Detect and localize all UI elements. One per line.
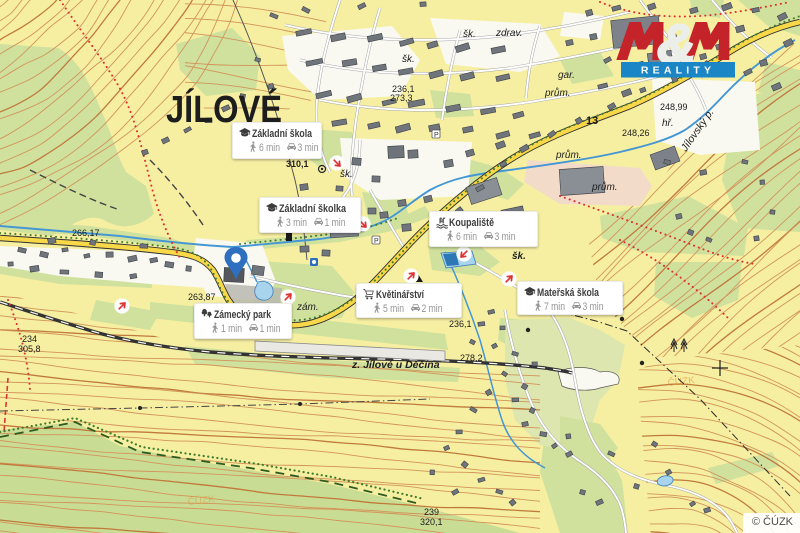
svg-text:320,1: 320,1 bbox=[420, 517, 443, 527]
svg-text:Květinářství: Květinářství bbox=[376, 289, 425, 301]
svg-text:305,8: 305,8 bbox=[18, 344, 41, 354]
svg-text:zdrav.: zdrav. bbox=[495, 28, 523, 39]
svg-text:263,87: 263,87 bbox=[188, 292, 216, 302]
svg-text:prům.: prům. bbox=[555, 149, 582, 161]
svg-text:3 min: 3 min bbox=[583, 301, 604, 313]
svg-text:šk.: šk. bbox=[512, 251, 526, 262]
svg-text:Základní školka: Základní školka bbox=[279, 203, 347, 215]
svg-text:3 min: 3 min bbox=[495, 231, 516, 243]
svg-text:šk.: šk. bbox=[463, 29, 476, 40]
svg-text:P: P bbox=[434, 132, 439, 139]
svg-text:prům.: prům. bbox=[544, 87, 571, 99]
svg-text:7 min: 7 min bbox=[544, 301, 565, 313]
svg-text:5 min: 5 min bbox=[383, 303, 404, 315]
svg-text:Koupaliště: Koupaliště bbox=[449, 217, 494, 229]
svg-text:239: 239 bbox=[424, 507, 439, 517]
svg-text:3 min: 3 min bbox=[298, 142, 319, 154]
svg-text:266,17: 266,17 bbox=[72, 228, 100, 238]
svg-text:1 min: 1 min bbox=[260, 323, 281, 335]
svg-text:248,99: 248,99 bbox=[660, 102, 688, 112]
svg-text:6 min: 6 min bbox=[259, 142, 280, 154]
svg-text:šk.: šk. bbox=[340, 169, 353, 180]
svg-text:2 min: 2 min bbox=[422, 303, 443, 315]
svg-text:6 min: 6 min bbox=[456, 231, 477, 243]
svg-text:1 min: 1 min bbox=[221, 323, 242, 335]
svg-text:3 min: 3 min bbox=[286, 217, 307, 229]
svg-text:Mateřská škola: Mateřská škola bbox=[537, 287, 600, 299]
svg-text:236,1: 236,1 bbox=[392, 84, 415, 94]
svg-text:Zámecký park: Zámecký park bbox=[214, 309, 272, 321]
svg-text:1 min: 1 min bbox=[325, 217, 346, 229]
svg-text:278,2: 278,2 bbox=[460, 353, 483, 363]
svg-text:zám.: zám. bbox=[296, 302, 319, 313]
svg-text:REALITY: REALITY bbox=[641, 65, 715, 77]
svg-text:234: 234 bbox=[22, 334, 37, 344]
svg-text:P: P bbox=[374, 238, 379, 245]
svg-text:šk.: šk. bbox=[402, 54, 415, 65]
svg-text:236,1: 236,1 bbox=[449, 319, 472, 329]
svg-text:273,3: 273,3 bbox=[390, 93, 413, 103]
svg-text:prům.: prům. bbox=[591, 181, 618, 193]
svg-text:13: 13 bbox=[586, 115, 598, 127]
svg-text:248,26: 248,26 bbox=[622, 128, 650, 138]
svg-text:hř.: hř. bbox=[662, 118, 674, 129]
svg-text:310,1: 310,1 bbox=[286, 159, 309, 169]
svg-text:Základní škola: Základní škola bbox=[252, 128, 313, 140]
svg-text:z. Jílové u Děčína: z. Jílové u Děčína bbox=[351, 359, 440, 371]
svg-text:gar.: gar. bbox=[558, 70, 575, 81]
